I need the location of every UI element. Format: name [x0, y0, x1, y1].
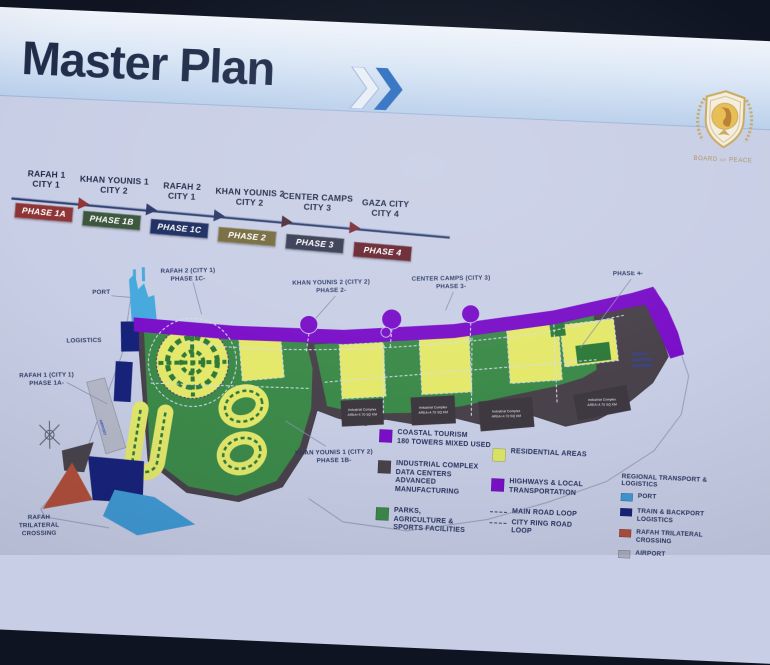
svg-text:AREA=4.70 SQ KM: AREA=4.70 SQ KM [492, 414, 522, 418]
residential-swatch [492, 448, 506, 462]
slide: Master Plan BOARD of PEACE RAFAH 1 CITY … [0, 6, 770, 665]
svg-text:KHAN YOUNIS 1 (CITY 2): KHAN YOUNIS 1 (CITY 2) [295, 448, 373, 456]
port-area [129, 267, 157, 321]
svg-text:AREA=4.70 SQ KM: AREA=4.70 SQ KM [587, 402, 617, 406]
legend-parks: PARKS, AGRICULTURE & SPORTS FACILITIES [375, 506, 494, 537]
svg-text:PHASE 1A-: PHASE 1A- [29, 380, 64, 388]
svg-text:Industrial Complex: Industrial Complex [348, 407, 377, 411]
phase-badge-1c: PHASE 1C [150, 219, 209, 239]
phase-badge-2: PHASE 2 [217, 227, 276, 247]
legend-label: MAIN ROAD LOOP [512, 508, 577, 519]
phase-badge-3: PHASE 3 [285, 234, 344, 254]
svg-text:CENTER CAMPS (CITY 3): CENTER CAMPS (CITY 3) [412, 274, 491, 282]
svg-text:LOGISTICS: LOGISTICS [632, 364, 652, 368]
svg-text:LOGISTICS: LOGISTICS [66, 337, 101, 345]
svg-text:PHASE 3-: PHASE 3- [436, 283, 466, 290]
legend-label: SPORTS FACILITIES [393, 524, 465, 536]
legend-highways: HIGHWAYS & LOCAL TRANSPORTATION [491, 477, 604, 499]
airport-swatch [618, 550, 630, 559]
legend-industrial: INDUSTRIAL COMPLEX DATA CENTERS ADVANCED… [377, 459, 496, 498]
legend-port: PORT [621, 492, 741, 506]
train-swatch [620, 508, 632, 517]
svg-text:RAFAH 2 (CITY 1): RAFAH 2 (CITY 1) [161, 267, 216, 275]
main-road-dash [490, 511, 507, 513]
crossing-swatch [619, 529, 631, 538]
svg-text:Industrial Complex: Industrial Complex [588, 397, 617, 401]
timeline-arrowhead [213, 209, 225, 222]
industrial-swatch [378, 460, 392, 474]
page-title: Master Plan [21, 30, 276, 96]
svg-text:AREA=4.70 SQ KM: AREA=4.70 SQ KM [348, 412, 378, 416]
harbor-basin [103, 488, 196, 536]
svg-text:KHAN YOUNIS 2 (CITY 2): KHAN YOUNIS 2 (CITY 2) [292, 278, 370, 286]
svg-text:GAZA CITY (CITY 4): GAZA CITY (CITY 4) [597, 262, 659, 270]
svg-text:BACKPORT: BACKPORT [632, 358, 653, 362]
shield-globe-icon [680, 83, 769, 159]
highways-swatch [491, 478, 505, 492]
legend-column-2: RESIDENTIAL AREAS HIGHWAYS & LOCAL TRANS… [488, 447, 604, 552]
svg-text:TRILATERAL: TRILATERAL [19, 522, 60, 530]
parks-swatch [376, 507, 390, 521]
ring-road-dash [490, 522, 507, 524]
legend-ring-road: CITY RING ROAD LOOP [489, 518, 602, 540]
title-band: Master Plan [0, 6, 770, 133]
compass-icon [39, 421, 59, 449]
svg-text:Industrial Complex: Industrial Complex [492, 409, 521, 413]
timeline-arrowhead [78, 197, 90, 210]
port-swatch [621, 493, 633, 502]
svg-text:PORT: PORT [92, 289, 110, 296]
legend-label: PORT [638, 493, 657, 501]
timeline-arrowhead [146, 203, 158, 216]
svg-text:RAFAH 1 (CITY 1): RAFAH 1 (CITY 1) [19, 371, 74, 379]
svg-text:TRAIN &: TRAIN & [632, 352, 647, 356]
phase-badge-1b: PHASE 1B [82, 211, 141, 231]
legend-train-backport: TRAIN & BACKPORT LOGISTICS [620, 507, 741, 527]
svg-text:PHASE 4-: PHASE 4- [613, 270, 643, 277]
svg-text:Industrial Complex: Industrial Complex [419, 405, 448, 409]
board-of-peace-logo: BOARD of PEACE [679, 83, 769, 179]
svg-text:AREA=4.70 SQ KM: AREA=4.70 SQ KM [419, 410, 449, 414]
svg-text:RAFAH: RAFAH [28, 514, 51, 521]
legend-label: AIRPORT [635, 550, 665, 559]
svg-text:PHASE 1C-: PHASE 1C- [171, 275, 206, 283]
svg-text:PHASE 1B-: PHASE 1B- [317, 457, 352, 465]
svg-text:PHASE 2-: PHASE 2- [316, 287, 346, 294]
timeline-arrowhead [281, 215, 293, 228]
chevron-right-icon [348, 67, 408, 112]
legend-label: ADVANCED MANUFACTURING [395, 477, 496, 498]
phase-badge-1a: PHASE 1A [14, 203, 73, 223]
timeline-arrowhead [349, 221, 361, 234]
legend-airport: AIRPORT [618, 549, 738, 563]
legend-rafah-crossing: RAFAH TRILATERAL CROSSING [619, 528, 740, 548]
timeline-city-5: GAZA CITY CITY 4 [339, 196, 432, 220]
svg-text:CROSSING: CROSSING [22, 530, 57, 538]
coastal-tourism-swatch [379, 429, 393, 443]
legend-column-1: COASTAL TOURISM 180 TOWERS MIXED USED IN… [374, 428, 497, 550]
